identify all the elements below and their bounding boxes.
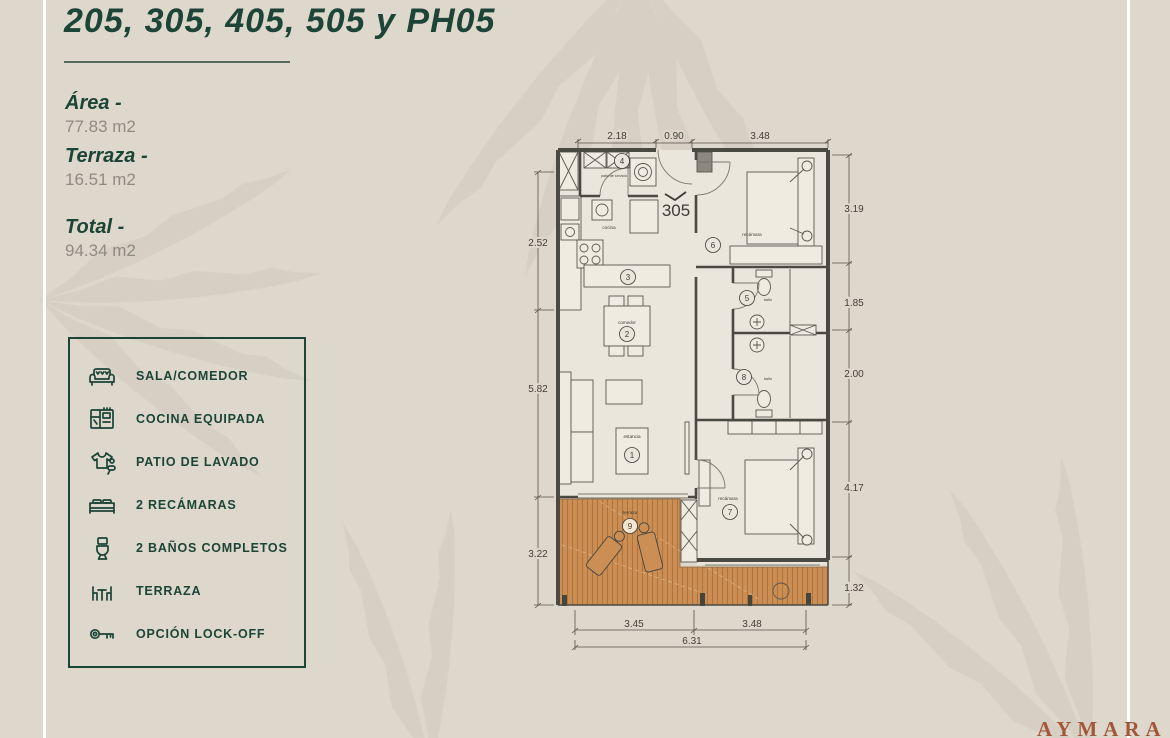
svg-text:0.90: 0.90: [664, 131, 684, 142]
title-underline: [64, 61, 290, 63]
key-icon: [86, 619, 120, 649]
svg-text:2.52: 2.52: [528, 238, 548, 249]
svg-text:3.48: 3.48: [742, 619, 762, 630]
svg-text:comedor: comedor: [618, 320, 636, 325]
svg-text:6: 6: [711, 241, 716, 250]
terrace-label: Terraza -: [65, 145, 148, 168]
svg-text:3.22: 3.22: [528, 549, 548, 560]
svg-text:2: 2: [625, 330, 630, 339]
svg-text:7: 7: [728, 508, 733, 517]
svg-text:3.48: 3.48: [750, 131, 770, 142]
room-terraza: terraza 9: [623, 510, 638, 534]
svg-text:cocina: cocina: [602, 225, 616, 230]
svg-text:5: 5: [745, 294, 750, 303]
svg-text:baño: baño: [764, 377, 772, 381]
svg-text:1.85: 1.85: [844, 298, 864, 309]
area-summary: Área - 77.83 m2 Terraza - 16.51 m2 Total…: [65, 92, 148, 269]
total-value: 94.34 m2: [65, 241, 148, 261]
svg-text:305: 305: [662, 201, 690, 220]
feature-label: SALA/COMEDOR: [136, 369, 248, 383]
toilet-icon: [86, 533, 120, 563]
svg-text:8: 8: [742, 373, 747, 382]
feature-row-banos: 2 BAÑOS COMPLETOS: [70, 526, 304, 569]
svg-text:1.32: 1.32: [844, 583, 864, 594]
feature-label: 2 RECÁMARAS: [136, 498, 236, 512]
frame-line-right: [1127, 0, 1130, 738]
feature-row-sala: SALA/COMEDOR: [70, 354, 304, 397]
svg-text:5.82: 5.82: [528, 384, 548, 395]
feature-row-recamaras: 2 RECÁMARAS: [70, 483, 304, 526]
svg-text:recámara: recámara: [742, 232, 762, 237]
terrace-icon: [86, 576, 120, 606]
bed-icon: [86, 490, 120, 520]
svg-text:estancia: estancia: [623, 434, 641, 439]
svg-text:2.00: 2.00: [844, 369, 864, 380]
feature-label: OPCIÓN LOCK-OFF: [136, 627, 265, 641]
feature-label: PATIO DE LAVADO: [136, 455, 260, 469]
total-label: Total -: [65, 216, 148, 239]
svg-text:3.19: 3.19: [844, 204, 864, 215]
feature-row-cocina: COCINA EQUIPADA: [70, 397, 304, 440]
area-label: Área -: [65, 92, 148, 115]
svg-text:recámara: recámara: [718, 496, 738, 501]
feature-label: 2 BAÑOS COMPLETOS: [136, 541, 288, 555]
feature-row-lockoff: OPCIÓN LOCK-OFF: [70, 612, 304, 655]
brochure-page: 205, 305, 405, 505 y PH05 Área - 77.83 m…: [0, 0, 1170, 738]
svg-text:4.17: 4.17: [844, 483, 864, 494]
svg-text:2.18: 2.18: [607, 131, 627, 142]
frame-line-left: [43, 0, 46, 738]
svg-text:9: 9: [628, 522, 633, 531]
floorplan: 4 patio de servicio cocina 3 recámara 6 …: [515, 118, 887, 662]
kitchen-icon: [86, 404, 120, 434]
page-title: 205, 305, 405, 505 y PH05: [64, 2, 495, 41]
svg-text:6.31: 6.31: [682, 636, 702, 647]
svg-text:1: 1: [630, 451, 635, 460]
svg-text:3.45: 3.45: [624, 619, 644, 630]
feature-row-lavado: PATIO DE LAVADO: [70, 440, 304, 483]
brand-logo: AYMARA: [1037, 717, 1167, 738]
svg-text:4: 4: [620, 157, 625, 166]
laundry-icon: [86, 447, 120, 477]
svg-text:patio de servicio: patio de servicio: [601, 174, 627, 178]
svg-text:3: 3: [626, 273, 631, 282]
feature-label: COCINA EQUIPADA: [136, 412, 265, 426]
feature-row-terraza: TERRAZA: [70, 569, 304, 612]
feature-label: TERRAZA: [136, 584, 201, 598]
area-value: 77.83 m2: [65, 117, 148, 137]
features-box: SALA/COMEDOR COCINA EQUIPADA PATIO DE LA…: [68, 337, 306, 668]
svg-text:terraza: terraza: [623, 510, 638, 515]
terrace-value: 16.51 m2: [65, 170, 148, 190]
sofa-icon: [86, 361, 120, 391]
svg-text:baño: baño: [764, 298, 772, 302]
